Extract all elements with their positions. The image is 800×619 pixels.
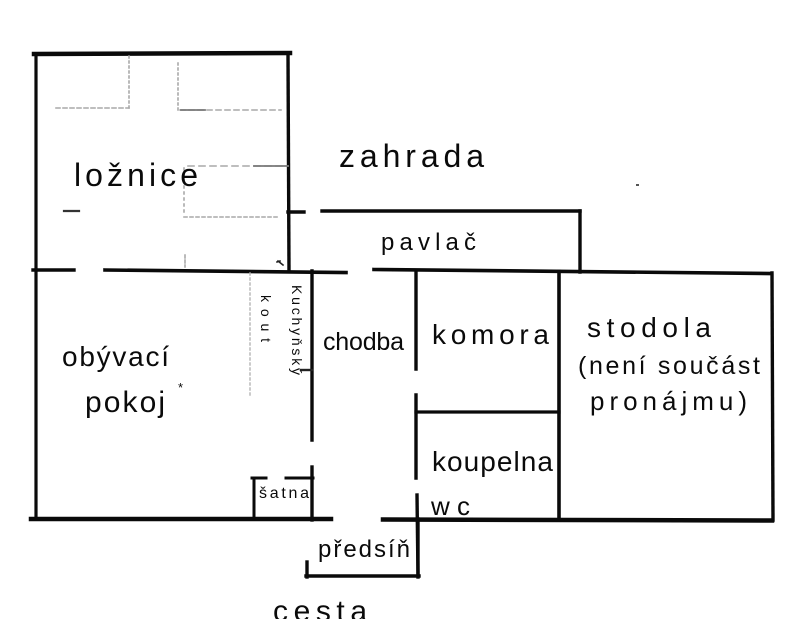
svg-text:kout: kout bbox=[258, 295, 274, 342]
svg-text:obývací: obývací bbox=[62, 341, 169, 372]
svg-text:wc: wc bbox=[430, 491, 470, 521]
svg-text:pokoj: pokoj bbox=[85, 386, 165, 419]
svg-text:šatna: šatna bbox=[259, 485, 309, 502]
svg-text:Kuchyňský: Kuchyňský bbox=[289, 285, 305, 375]
svg-text:chodba: chodba bbox=[323, 328, 404, 356]
svg-text:*: * bbox=[178, 380, 183, 395]
svg-text:ložnice: ložnice bbox=[74, 157, 198, 193]
svg-text:stodola: stodola bbox=[587, 312, 711, 343]
svg-text:koupelna: koupelna bbox=[432, 446, 553, 477]
svg-text:(není součást: (není součást bbox=[578, 352, 760, 380]
svg-text:pronájmu): pronájmu) bbox=[590, 386, 747, 416]
svg-text:předsíň: předsíň bbox=[318, 536, 410, 563]
svg-text:pavlač: pavlač bbox=[381, 229, 476, 256]
svg-text:komora: komora bbox=[432, 319, 549, 350]
svg-text:cesta: cesta bbox=[273, 595, 367, 619]
svg-text:zahrada: zahrada bbox=[339, 138, 484, 174]
